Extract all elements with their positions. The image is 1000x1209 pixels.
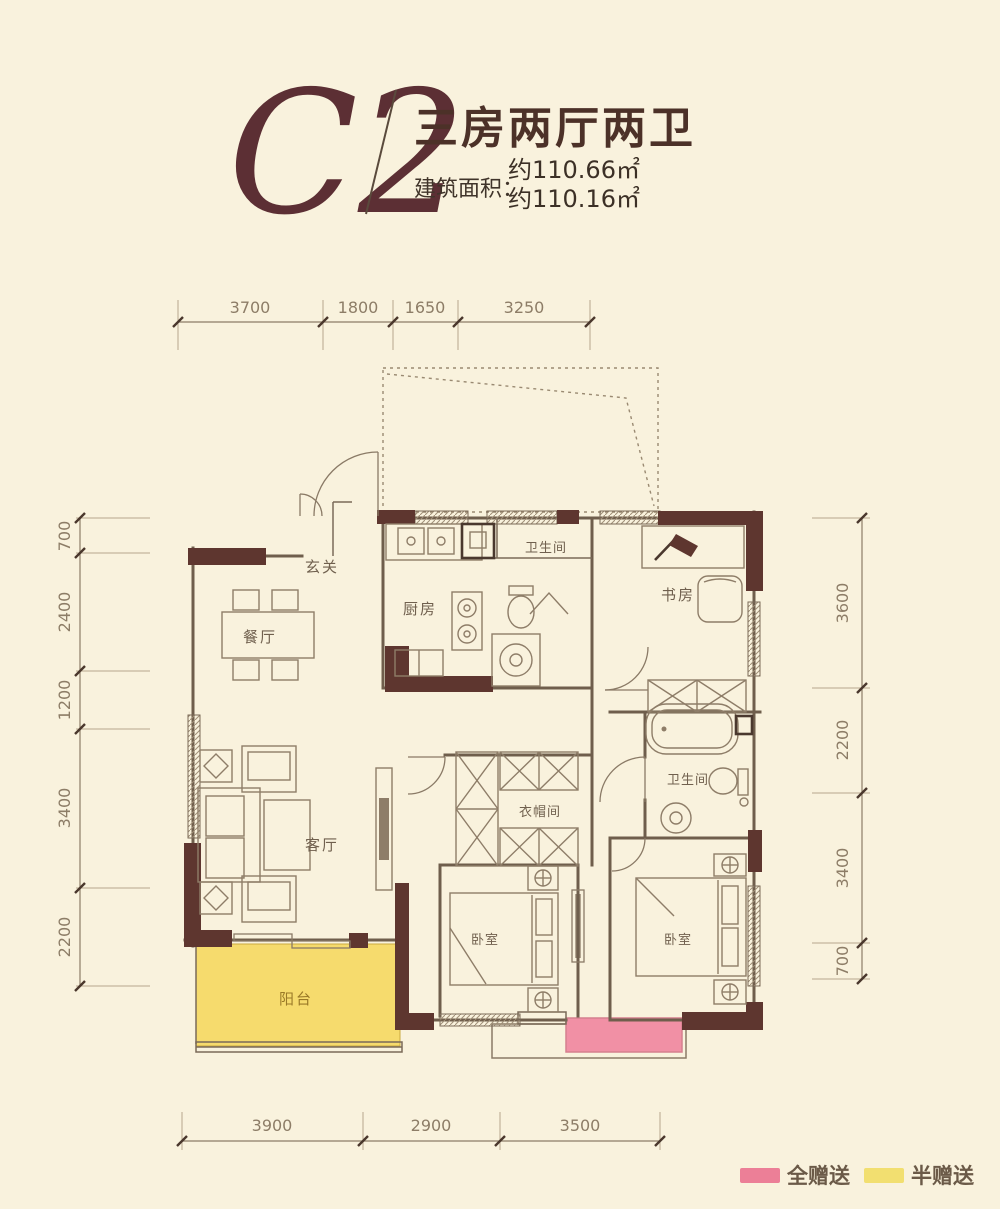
study-desk-icon bbox=[642, 526, 744, 622]
floorplan-page: C2 三房两厅两卫 建筑面积： 约110.66㎡ 约110.16㎡ 3700 1… bbox=[0, 0, 1000, 1209]
dim-label: 3250 bbox=[504, 298, 545, 317]
shower-icon bbox=[530, 593, 568, 614]
plan-code: C2 bbox=[228, 55, 466, 253]
room-label-bath-top: 卫生间 bbox=[525, 541, 567, 556]
full-gift-area bbox=[566, 1018, 682, 1052]
window-bedroom-left bbox=[440, 1014, 520, 1026]
dim-label: 2200 bbox=[55, 917, 74, 958]
coffee-table-icon bbox=[264, 800, 310, 870]
living-sofa-set-icon bbox=[198, 746, 392, 922]
stove-icon bbox=[452, 592, 482, 650]
bedroom-right-furniture bbox=[636, 854, 746, 1004]
dim-label: 1650 bbox=[405, 298, 446, 317]
window-bedroom-right bbox=[748, 886, 760, 986]
legend-label-half-gift: 半赠送 bbox=[911, 1164, 975, 1188]
dashed-roof-outline bbox=[383, 368, 658, 512]
legend-swatch-half-gift bbox=[864, 1168, 904, 1183]
room-label-study: 书房 bbox=[661, 586, 695, 604]
desk-item-icon bbox=[669, 534, 698, 557]
toilet-icon bbox=[509, 586, 533, 595]
dim-label: 3900 bbox=[252, 1116, 293, 1135]
cloakroom-door-arc bbox=[408, 757, 445, 794]
window-bath-top bbox=[487, 511, 557, 524]
dim-label: 3600 bbox=[833, 583, 852, 624]
bedroom-right-door-arc bbox=[612, 838, 645, 871]
tv-icon bbox=[379, 798, 389, 860]
sofa-icon bbox=[198, 788, 260, 882]
dim-label: 2900 bbox=[411, 1116, 452, 1135]
room-label-dining: 餐厅 bbox=[243, 628, 277, 646]
window-study-right bbox=[748, 602, 760, 676]
area-value-1: 约110.66㎡ bbox=[508, 156, 640, 184]
washbasin-icon bbox=[462, 524, 494, 558]
desk-chair-icon bbox=[698, 576, 742, 622]
room-label-bedroom-left: 卧室 bbox=[471, 932, 499, 948]
dim-label: 3400 bbox=[55, 788, 74, 829]
dim-label: 700 bbox=[55, 521, 74, 552]
dimension-top: 3700 1800 1650 3250 bbox=[173, 298, 595, 350]
room-label-kitchen: 厨房 bbox=[403, 600, 437, 618]
layout-name: 三房两厅两卫 bbox=[414, 103, 696, 154]
washing-machine-icon bbox=[492, 634, 540, 686]
legend-swatch-full-gift bbox=[740, 1168, 780, 1183]
room-label-cloakroom: 衣帽间 bbox=[519, 804, 561, 820]
legend-label-full-gift: 全赠送 bbox=[786, 1164, 851, 1188]
room-label-bedroom-right: 卧室 bbox=[664, 932, 692, 948]
dimension-right: 3600 2200 3400 700 bbox=[812, 513, 870, 984]
dim-label: 1200 bbox=[55, 680, 74, 721]
dim-label: 3500 bbox=[560, 1116, 601, 1135]
dim-label: 700 bbox=[833, 946, 852, 977]
dim-label: 3700 bbox=[230, 298, 271, 317]
dim-label: 2400 bbox=[55, 592, 74, 633]
room-label-bath-mid: 卫生间 bbox=[667, 773, 709, 788]
dim-label: 2200 bbox=[833, 720, 852, 761]
dimension-left: 700 2400 1200 3400 2200 bbox=[55, 513, 150, 991]
washbasin-oval-icon bbox=[709, 768, 737, 794]
toilet-round-icon bbox=[661, 803, 691, 833]
room-label-living: 客厅 bbox=[305, 836, 339, 854]
entry-door-arc-large bbox=[314, 452, 378, 516]
bed-icon bbox=[636, 878, 746, 976]
window-kitchen bbox=[415, 511, 468, 524]
dimension-bottom: 3900 2900 3500 bbox=[177, 1112, 665, 1150]
bed-icon bbox=[450, 893, 558, 985]
study-door-arc bbox=[605, 647, 648, 690]
dim-label: 3400 bbox=[833, 848, 852, 889]
bath-mid-door-arc bbox=[600, 757, 645, 802]
area-value-2: 约110.16㎡ bbox=[508, 185, 640, 213]
room-label-balcony: 阳台 bbox=[279, 990, 313, 1008]
dim-label: 1800 bbox=[338, 298, 379, 317]
legend: 全赠送 半赠送 bbox=[740, 1164, 975, 1188]
entry-door-arc-small bbox=[300, 494, 322, 516]
window-study bbox=[600, 511, 660, 524]
bedroom-left-furniture bbox=[450, 866, 558, 1012]
title-block: C2 三房两厅两卫 建筑面积： 约110.66㎡ 约110.16㎡ bbox=[228, 55, 696, 253]
study-wardrobe-icon bbox=[648, 680, 746, 712]
room-label-entry: 玄关 bbox=[305, 558, 339, 576]
bath-mid-fixtures bbox=[646, 704, 752, 833]
